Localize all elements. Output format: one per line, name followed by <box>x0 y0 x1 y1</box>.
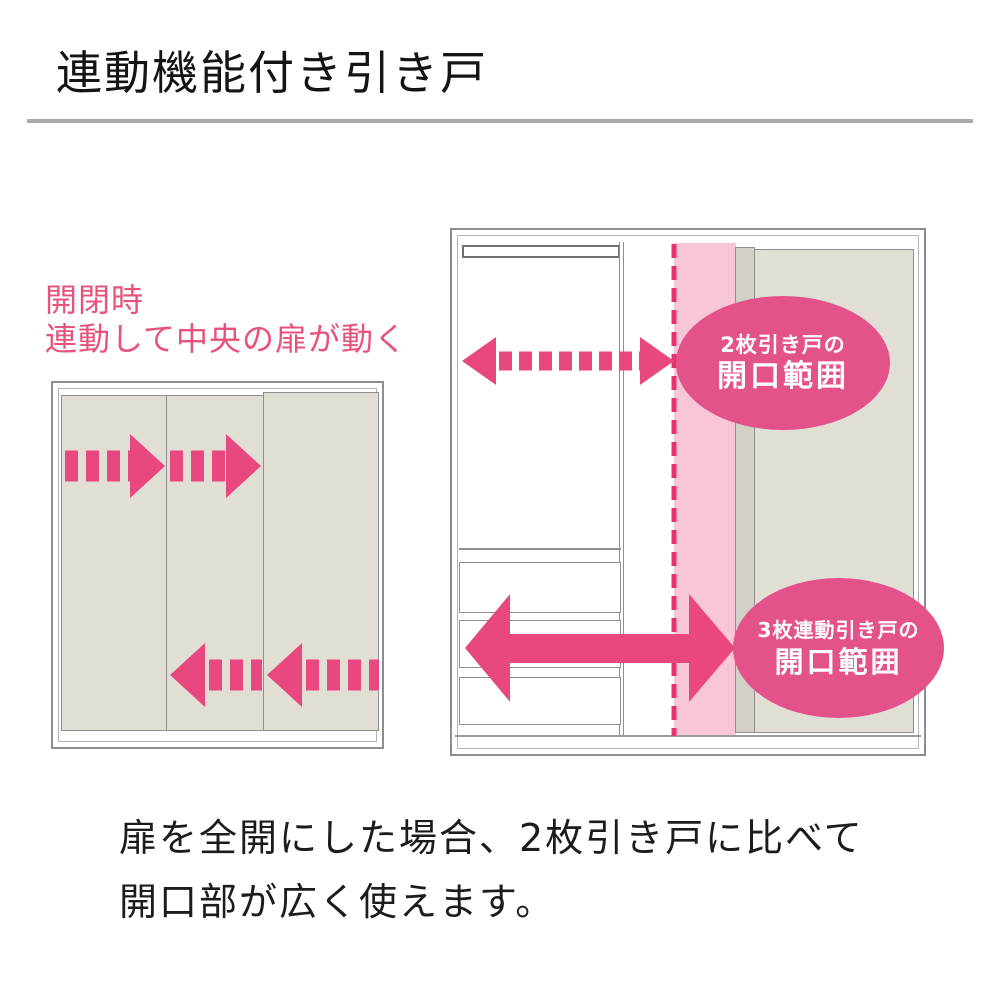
motion-caption: 開閉時 連動して中央の扉が動く <box>45 281 407 359</box>
arrow-head <box>170 643 205 707</box>
motion-caption-line1: 開閉時 <box>45 281 407 320</box>
arrow-head <box>226 434 261 498</box>
arrow-head-right <box>640 337 674 385</box>
three-panel-range-arrow-icon <box>465 594 735 702</box>
badge-label-line1: 2枚引き戸の <box>720 331 846 359</box>
description-text: 扉を全開にした場合、2枚引き戸に比べて 開口部が広く使えます。 <box>119 806 864 934</box>
badge-label-line2: 開口範囲 <box>717 359 849 395</box>
description-line2: 開口部が広く使えます。 <box>119 870 864 934</box>
badge-label-line1: 3枚連動引き戸の <box>758 616 920 644</box>
arrow-head <box>130 434 165 498</box>
two-panel-range-badge: 2枚引き戸の 開口範囲 <box>676 296 890 430</box>
two-panel-range-arrow-icon <box>462 337 674 385</box>
arrow-head-left <box>462 337 496 385</box>
arrow-head-left <box>465 594 510 702</box>
motion-caption-line2: 連動して中央の扉が動く <box>45 320 407 359</box>
left-cabinet-arrows <box>53 383 382 747</box>
three-door-cabinet-diagram <box>51 381 384 749</box>
solid-shaft <box>508 634 690 663</box>
product-diagram-page: 連動機能付き引き戸 開閉時 連動して中央の扉が動く <box>0 0 1000 1000</box>
slide-right-arrow-icon <box>170 434 261 498</box>
slide-left-arrow-icon <box>267 643 379 707</box>
arrow-head-right <box>689 594 735 702</box>
opening-range-cabinet-diagram: 2枚引き戸の 開口範囲 3枚連動引き戸の 開口範囲 <box>450 228 926 756</box>
description-line1: 扉を全開にした場合、2枚引き戸に比べて <box>119 806 864 870</box>
three-panel-range-badge: 3枚連動引き戸の 開口範囲 <box>733 578 944 718</box>
arrow-head <box>267 643 302 707</box>
slide-left-arrow-icon <box>170 643 262 707</box>
slide-right-arrow-icon <box>65 434 165 498</box>
title-underline <box>27 119 973 123</box>
badge-label-line2: 開口範囲 <box>774 644 902 680</box>
page-title: 連動機能付き引き戸 <box>56 44 488 102</box>
